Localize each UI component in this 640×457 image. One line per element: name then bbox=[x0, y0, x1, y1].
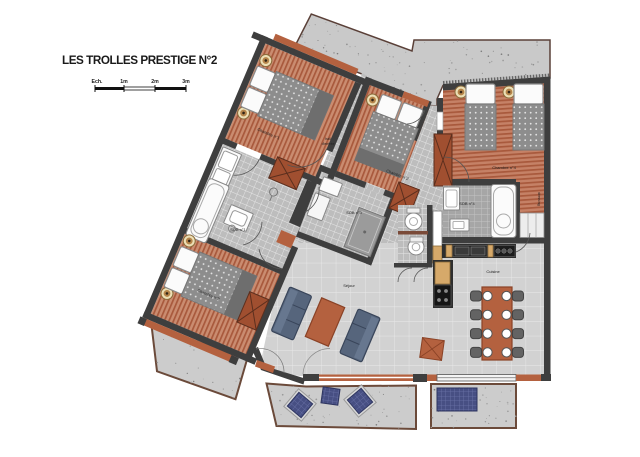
svg-text:Séjour: Séjour bbox=[343, 283, 355, 288]
svg-text:1m: 1m bbox=[120, 79, 128, 85]
svg-text:hall: hall bbox=[325, 137, 331, 141]
svg-text:dressing: dressing bbox=[537, 192, 541, 205]
svg-text:SDB n°3: SDB n°3 bbox=[346, 210, 362, 215]
svg-text:Chambre n°4: Chambre n°4 bbox=[492, 165, 516, 170]
svg-text:LES TROLLES PRESTIGE N°2: LES TROLLES PRESTIGE N°2 bbox=[62, 54, 218, 67]
svg-text:Cuisine: Cuisine bbox=[486, 269, 500, 274]
svg-text:2m: 2m bbox=[151, 79, 159, 85]
svg-text:d'entrée: d'entrée bbox=[322, 142, 335, 146]
svg-text:Ech.: Ech. bbox=[92, 79, 104, 85]
svg-text:SDB n°4: SDB n°4 bbox=[459, 201, 475, 206]
svg-text:3m: 3m bbox=[182, 79, 190, 85]
svg-text:SDB n°1: SDB n°1 bbox=[230, 227, 246, 232]
